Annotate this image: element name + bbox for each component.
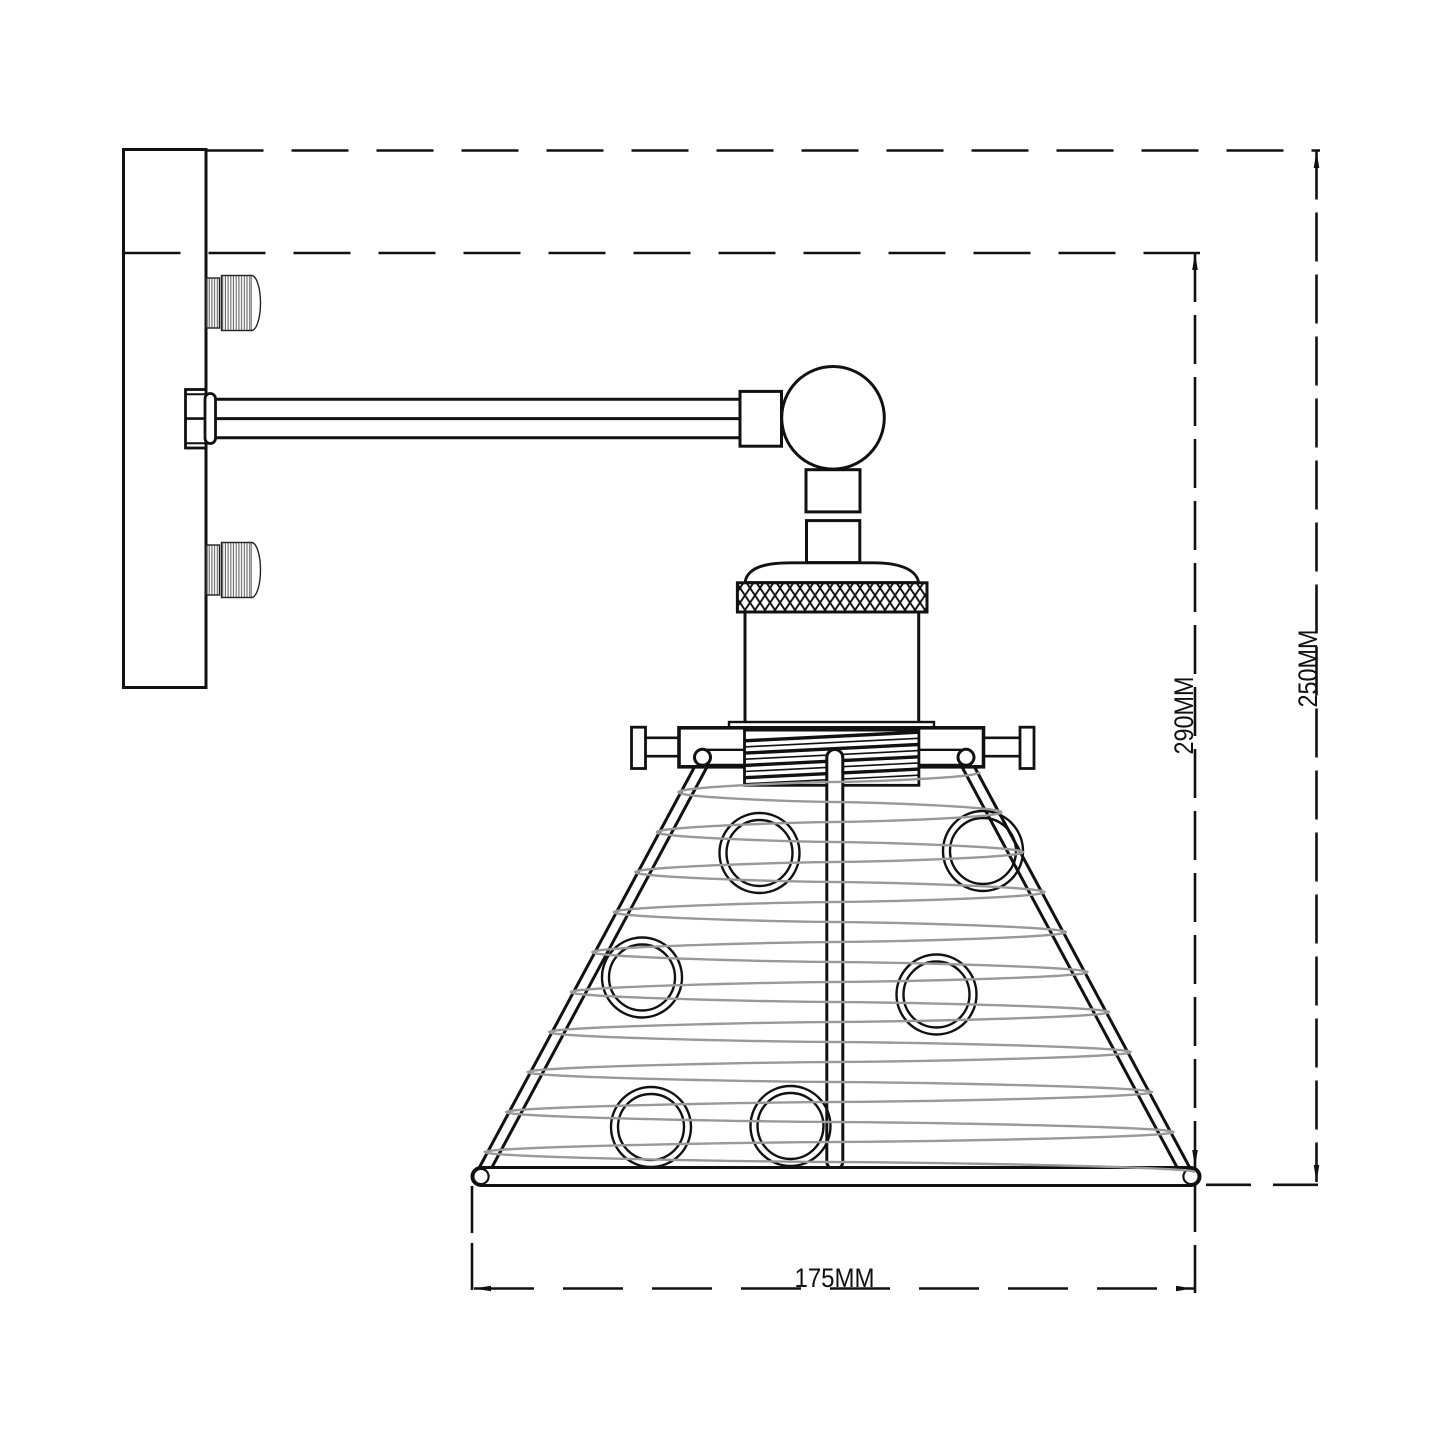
svg-text:175MM: 175MM xyxy=(795,1263,875,1293)
svg-text:250MM: 250MM xyxy=(1293,630,1323,708)
svg-text:290MM: 290MM xyxy=(1169,677,1199,755)
